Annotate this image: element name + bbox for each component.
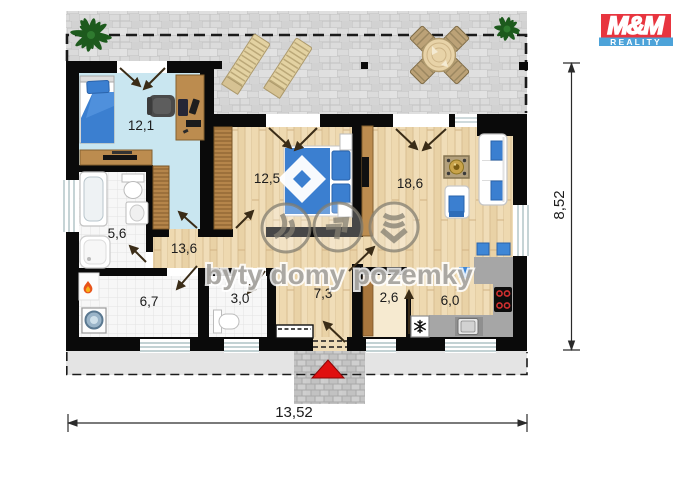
svg-text:6,0: 6,0 bbox=[441, 293, 460, 308]
svg-text:2,6: 2,6 bbox=[380, 290, 399, 305]
svg-text:8,52: 8,52 bbox=[551, 190, 568, 219]
svg-text:byty domy pozemky: byty domy pozemky bbox=[205, 259, 473, 290]
svg-text:REALITY: REALITY bbox=[610, 37, 662, 47]
svg-text:5,6: 5,6 bbox=[108, 226, 127, 241]
svg-text:12,5: 12,5 bbox=[254, 171, 280, 186]
svg-text:18,6: 18,6 bbox=[397, 176, 423, 191]
svg-text:6,7: 6,7 bbox=[140, 294, 159, 309]
svg-text:M&M: M&M bbox=[607, 12, 665, 40]
svg-text:13,6: 13,6 bbox=[171, 241, 197, 256]
svg-text:3,0: 3,0 bbox=[231, 291, 250, 306]
svg-text:13,52: 13,52 bbox=[275, 404, 313, 421]
svg-text:12,1: 12,1 bbox=[128, 118, 154, 133]
